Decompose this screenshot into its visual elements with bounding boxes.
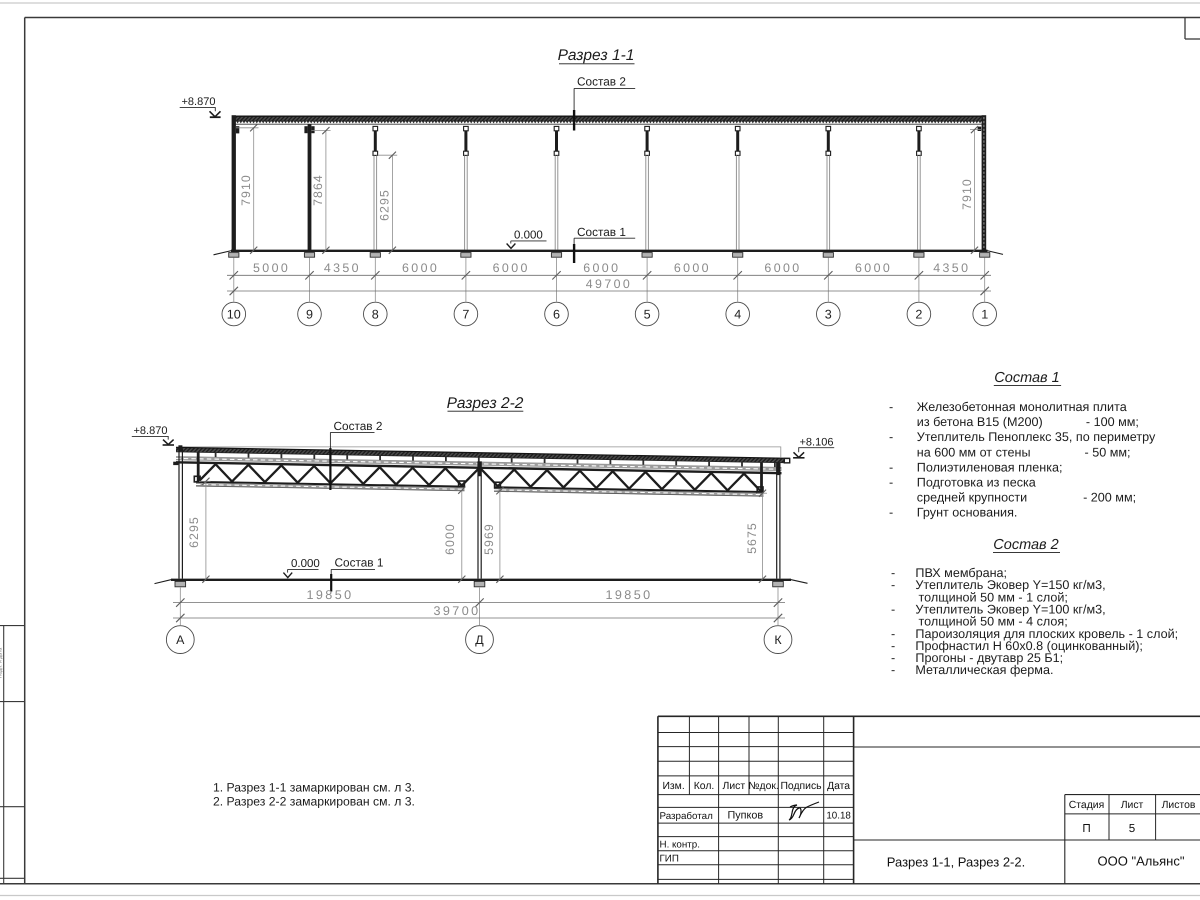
svg-text:6: 6 <box>553 307 560 321</box>
svg-text:- 100 мм;: - 100 мм; <box>1086 415 1139 429</box>
svg-text:-: - <box>889 430 893 444</box>
svg-text:-: - <box>889 460 893 474</box>
svg-text:П: П <box>1082 822 1090 835</box>
svg-text:6295: 6295 <box>187 516 201 548</box>
svg-text:К: К <box>774 633 782 647</box>
svg-text:19850: 19850 <box>605 588 652 602</box>
svg-text:10: 10 <box>227 307 241 321</box>
svg-text:Состав 2: Состав 2 <box>993 537 1058 553</box>
svg-text:6000: 6000 <box>493 261 530 275</box>
svg-text:6295: 6295 <box>378 189 392 221</box>
svg-text:8: 8 <box>372 307 379 321</box>
svg-text:Лист: Лист <box>1121 800 1144 811</box>
svg-text:Разрез 1-1: Разрез 1-1 <box>558 47 635 64</box>
svg-text:39700: 39700 <box>433 604 480 618</box>
svg-text:Листов: Листов <box>1162 800 1196 811</box>
svg-text:Полиэтиленовая пленка;: Полиэтиленовая пленка; <box>917 460 1063 474</box>
svg-text:6000: 6000 <box>674 261 711 275</box>
svg-text:- 200 мм;: - 200 мм; <box>1083 491 1136 505</box>
svg-text:+8.870: +8.870 <box>134 425 168 437</box>
svg-text:№док.: №док. <box>748 781 778 792</box>
svg-text:Состав 2: Состав 2 <box>334 419 383 433</box>
svg-text:7864: 7864 <box>311 174 325 206</box>
svg-text:Железобетонная монолитная пли: Железобетонная монолитная плита <box>917 400 1127 414</box>
svg-text:4: 4 <box>734 307 741 321</box>
svg-text:Металлическая ферма.: Металлическая ферма. <box>915 663 1053 677</box>
svg-text:-: - <box>889 476 893 490</box>
svg-text:Подп. и дата: Подп. и дата <box>0 648 4 679</box>
svg-text:5675: 5675 <box>745 522 759 554</box>
svg-text:2: 2 <box>915 307 922 321</box>
svg-text:5969: 5969 <box>482 523 496 555</box>
svg-text:3: 3 <box>825 307 832 321</box>
svg-text:ГИП: ГИП <box>660 854 679 865</box>
svg-text:1. Разрез 1-1 замаркирован см.: 1. Разрез 1-1 замаркирован см. л 3. <box>213 780 415 794</box>
svg-text:Н. контр.: Н. контр. <box>660 840 700 851</box>
svg-text:Состав 1: Состав 1 <box>994 370 1059 386</box>
svg-text:5: 5 <box>644 307 651 321</box>
svg-text:+8.106: +8.106 <box>800 436 834 448</box>
svg-text:7910: 7910 <box>239 174 253 206</box>
svg-text:Лист: Лист <box>723 781 746 792</box>
svg-text:Д: Д <box>475 633 484 647</box>
svg-text:А: А <box>176 633 185 647</box>
svg-text:из бетона В15 (М200): из бетона В15 (М200) <box>917 415 1043 429</box>
svg-text:7910: 7910 <box>960 178 974 210</box>
svg-text:-: - <box>891 578 895 592</box>
svg-text:2. Разрез 2-2 замаркирован см.: 2. Разрез 2-2 замаркирован см. л 3. <box>213 794 415 808</box>
svg-text:Грунт основания.: Грунт основания. <box>917 506 1018 520</box>
svg-text:Подготовка из песка: Подготовка из песка <box>917 476 1036 490</box>
svg-text:Подпись: Подпись <box>780 781 821 792</box>
svg-text:Изм.: Изм. <box>662 781 684 792</box>
svg-text:5: 5 <box>1129 822 1135 835</box>
svg-text:- 50 мм;: - 50 мм; <box>1085 445 1131 459</box>
svg-text:10.18: 10.18 <box>826 811 851 822</box>
svg-text:Разработал: Разработал <box>660 811 714 822</box>
svg-text:Пупков: Пупков <box>728 810 764 822</box>
svg-text:6000: 6000 <box>855 261 892 275</box>
svg-text:на 600 мм от стены: на 600 мм от стены <box>917 445 1031 459</box>
svg-text:Разрез 2-2: Разрез 2-2 <box>447 395 524 412</box>
svg-text:5000: 5000 <box>253 261 290 275</box>
svg-text:1: 1 <box>981 307 988 321</box>
svg-text:-: - <box>891 603 895 617</box>
svg-text:Кол.: Кол. <box>694 781 715 792</box>
svg-text:-: - <box>889 506 893 520</box>
svg-text:6000: 6000 <box>443 523 457 555</box>
svg-text:+8.870: +8.870 <box>182 96 216 108</box>
svg-text:0.000: 0.000 <box>291 558 320 570</box>
svg-text:средней крупности: средней крупности <box>917 491 1027 505</box>
svg-text:-: - <box>889 400 893 414</box>
svg-text:Стадия: Стадия <box>1069 800 1104 811</box>
svg-text:Состав 2: Состав 2 <box>577 75 626 89</box>
svg-text:19850: 19850 <box>306 588 353 602</box>
svg-text:6000: 6000 <box>402 261 439 275</box>
svg-text:Состав 1: Состав 1 <box>335 555 384 569</box>
svg-text:6000: 6000 <box>764 261 801 275</box>
svg-text:Разрез 1-1, Разрез 2-2.: Разрез 1-1, Разрез 2-2. <box>887 854 1025 869</box>
svg-text:4350: 4350 <box>324 261 361 275</box>
svg-text:6000: 6000 <box>583 261 620 275</box>
svg-text:Дата: Дата <box>827 781 850 792</box>
svg-text:Утеплитель Пеноплекс 35, по пе: Утеплитель Пеноплекс 35, по периметру <box>917 430 1156 444</box>
svg-text:49700: 49700 <box>586 277 632 291</box>
svg-text:0.000: 0.000 <box>514 230 543 242</box>
svg-text:9: 9 <box>306 307 313 321</box>
svg-text:ООО "Альянс": ООО "Альянс" <box>1098 854 1185 869</box>
svg-text:7: 7 <box>462 307 469 321</box>
svg-text:-: - <box>891 663 895 677</box>
svg-text:4350: 4350 <box>933 261 970 275</box>
svg-text:Состав 1: Состав 1 <box>577 225 626 239</box>
